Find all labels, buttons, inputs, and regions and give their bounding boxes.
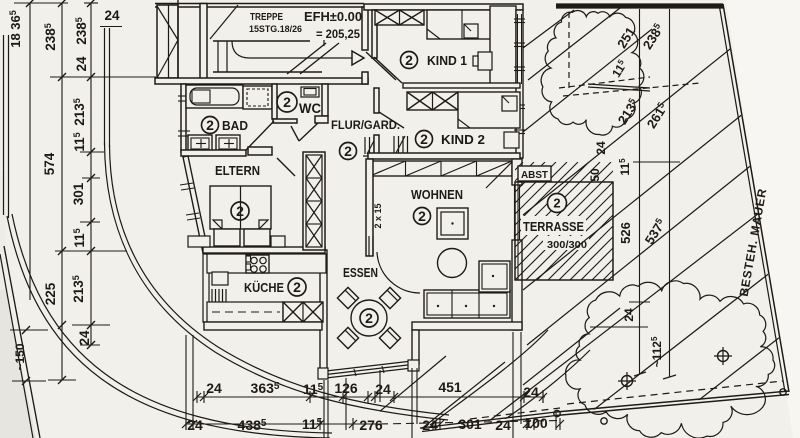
- svg-text:FLUR/GARD.: FLUR/GARD.: [331, 120, 400, 132]
- svg-text:15STG.18/26: 15STG.18/26: [249, 24, 302, 34]
- svg-text:18 365: 18 365: [8, 10, 23, 48]
- svg-text:126: 126: [334, 380, 358, 396]
- svg-text:KIND 2: KIND 2: [441, 132, 485, 147]
- svg-text:EFH±0.00: EFH±0.00: [304, 9, 362, 24]
- svg-text:2: 2: [344, 143, 352, 159]
- svg-text:2: 2: [293, 279, 301, 295]
- svg-text:KÜCHE: KÜCHE: [244, 280, 284, 295]
- svg-text:= 205,25: = 205,25: [316, 27, 360, 41]
- svg-text:2: 2: [206, 117, 214, 133]
- svg-text:TREPPE: TREPPE: [250, 12, 283, 23]
- svg-text:24: 24: [622, 308, 636, 322]
- svg-text:2: 2: [365, 310, 373, 326]
- svg-text:WC: WC: [299, 101, 321, 116]
- svg-text:2: 2: [283, 94, 291, 110]
- svg-text:24: 24: [104, 8, 120, 23]
- svg-text:24: 24: [495, 417, 511, 433]
- svg-text:526: 526: [618, 222, 633, 244]
- svg-text:100: 100: [524, 415, 548, 431]
- svg-text:301: 301: [458, 416, 482, 432]
- svg-text:24: 24: [206, 380, 222, 396]
- svg-text:ESSEN: ESSEN: [343, 266, 378, 280]
- svg-text:TERRASSE: TERRASSE: [523, 220, 584, 234]
- svg-text:50: 50: [588, 168, 602, 182]
- svg-text:2: 2: [553, 196, 560, 211]
- svg-text:24: 24: [422, 417, 438, 433]
- svg-text:KIND 1: KIND 1: [427, 53, 467, 68]
- svg-text:2: 2: [236, 203, 244, 219]
- svg-text:24: 24: [375, 381, 391, 397]
- svg-text:300/300: 300/300: [547, 239, 587, 251]
- svg-text:2: 2: [405, 52, 413, 68]
- svg-text:24: 24: [74, 56, 89, 72]
- svg-text:BAD: BAD: [222, 118, 248, 133]
- svg-text:24: 24: [187, 417, 203, 433]
- svg-text:ABST: ABST: [521, 170, 548, 181]
- svg-text:451: 451: [438, 379, 462, 395]
- svg-text:574: 574: [42, 152, 57, 175]
- svg-text:2 x 15: 2 x 15: [373, 203, 383, 228]
- svg-text:225: 225: [43, 282, 58, 305]
- svg-text:2: 2: [420, 131, 428, 147]
- svg-text:276: 276: [359, 417, 383, 433]
- svg-text:2: 2: [418, 208, 426, 224]
- svg-text:ELTERN: ELTERN: [215, 163, 260, 178]
- svg-text:301: 301: [71, 182, 86, 205]
- svg-text:24: 24: [77, 330, 92, 346]
- svg-text:24: 24: [523, 384, 539, 400]
- svg-text:24: 24: [594, 141, 608, 155]
- svg-text:WOHNEN: WOHNEN: [411, 187, 463, 202]
